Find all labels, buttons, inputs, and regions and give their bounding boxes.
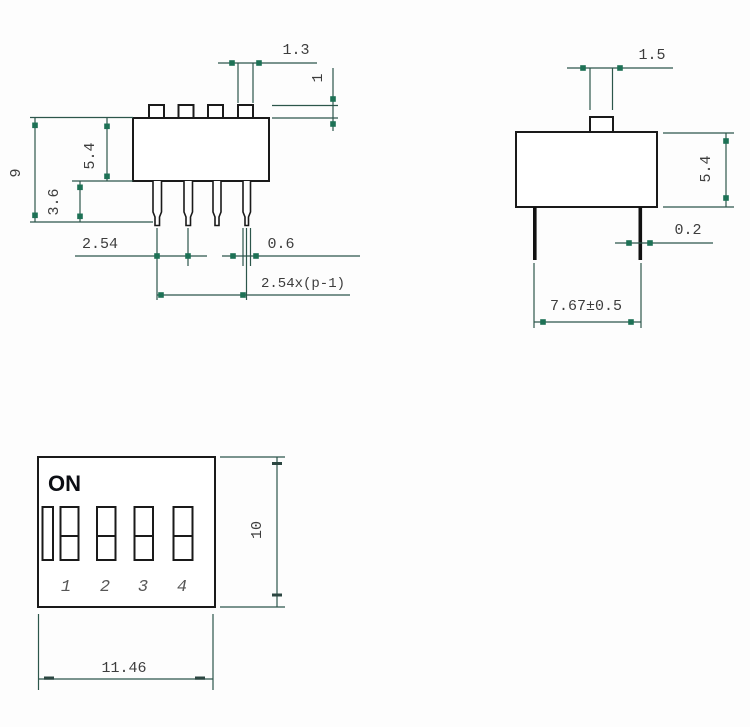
front-actuator-4 bbox=[238, 105, 253, 118]
front-dim-actuator-width-label: 1.3 bbox=[282, 42, 309, 59]
front-view: 1.3 1 9 5.4 3.6 2.54 0.6 2.54x(p-1) bbox=[8, 42, 360, 300]
front-actuators bbox=[149, 105, 253, 118]
top-on-label: ON bbox=[48, 471, 81, 496]
front-pin-1 bbox=[153, 181, 162, 226]
front-dim-body-height-label: 5.4 bbox=[82, 142, 99, 169]
side-body-outline bbox=[516, 132, 657, 207]
front-actuator-1 bbox=[149, 105, 164, 118]
front-dim-pin-span-label: 2.54x(p-1) bbox=[261, 276, 345, 292]
front-dim-pin-pitch-label: 2.54 bbox=[82, 236, 118, 253]
top-position-number-3: 3 bbox=[138, 578, 148, 597]
top-position-number-4: 4 bbox=[177, 578, 187, 597]
front-dim-pin-width-label: 0.6 bbox=[267, 236, 294, 253]
top-slot-2 bbox=[97, 507, 116, 560]
drawing-sheet: 1.3 1 9 5.4 3.6 2.54 0.6 2.54x(p-1) bbox=[0, 0, 750, 727]
front-actuator-3 bbox=[208, 105, 223, 118]
front-pin-4 bbox=[243, 181, 251, 226]
top-slot-4 bbox=[174, 507, 193, 560]
front-dim-pin-length-label: 3.6 bbox=[46, 188, 63, 215]
side-dim-body-height-label: 5.4 bbox=[698, 155, 715, 182]
top-position-number-1: 1 bbox=[61, 578, 71, 597]
top-slot-3 bbox=[135, 507, 154, 560]
front-dim-overall-height-label: 9 bbox=[8, 168, 25, 177]
front-actuator-2 bbox=[179, 105, 194, 118]
front-body-outline bbox=[133, 118, 269, 181]
front-pins bbox=[153, 181, 251, 226]
top-edge-slot bbox=[43, 507, 54, 560]
top-slot-1 bbox=[61, 507, 79, 560]
top-dim-body-width-label: 11.46 bbox=[101, 660, 146, 677]
side-dim-pin-row-spacing-label: 7.67±0.5 bbox=[550, 298, 622, 315]
side-dim-pin-thickness-label: 0.2 bbox=[674, 222, 701, 239]
top-view: ON 1 2 3 4 bbox=[38, 457, 285, 690]
front-dim-actuator-height-label: 1 bbox=[310, 73, 327, 82]
side-dim-actuator-width-label: 1.5 bbox=[638, 47, 665, 64]
dip-switch-drawing: 1.3 1 9 5.4 3.6 2.54 0.6 2.54x(p-1) bbox=[0, 0, 750, 727]
side-actuator bbox=[590, 117, 613, 132]
side-pin-left bbox=[533, 207, 537, 260]
front-pin-2 bbox=[184, 181, 193, 226]
top-dim-body-depth-label: 10 bbox=[249, 521, 266, 539]
top-position-number-2: 2 bbox=[100, 578, 110, 597]
side-view: 1.5 5.4 0.2 7.67±0.5 bbox=[516, 47, 734, 328]
front-pin-3 bbox=[213, 181, 221, 226]
side-pin-right bbox=[639, 207, 643, 260]
